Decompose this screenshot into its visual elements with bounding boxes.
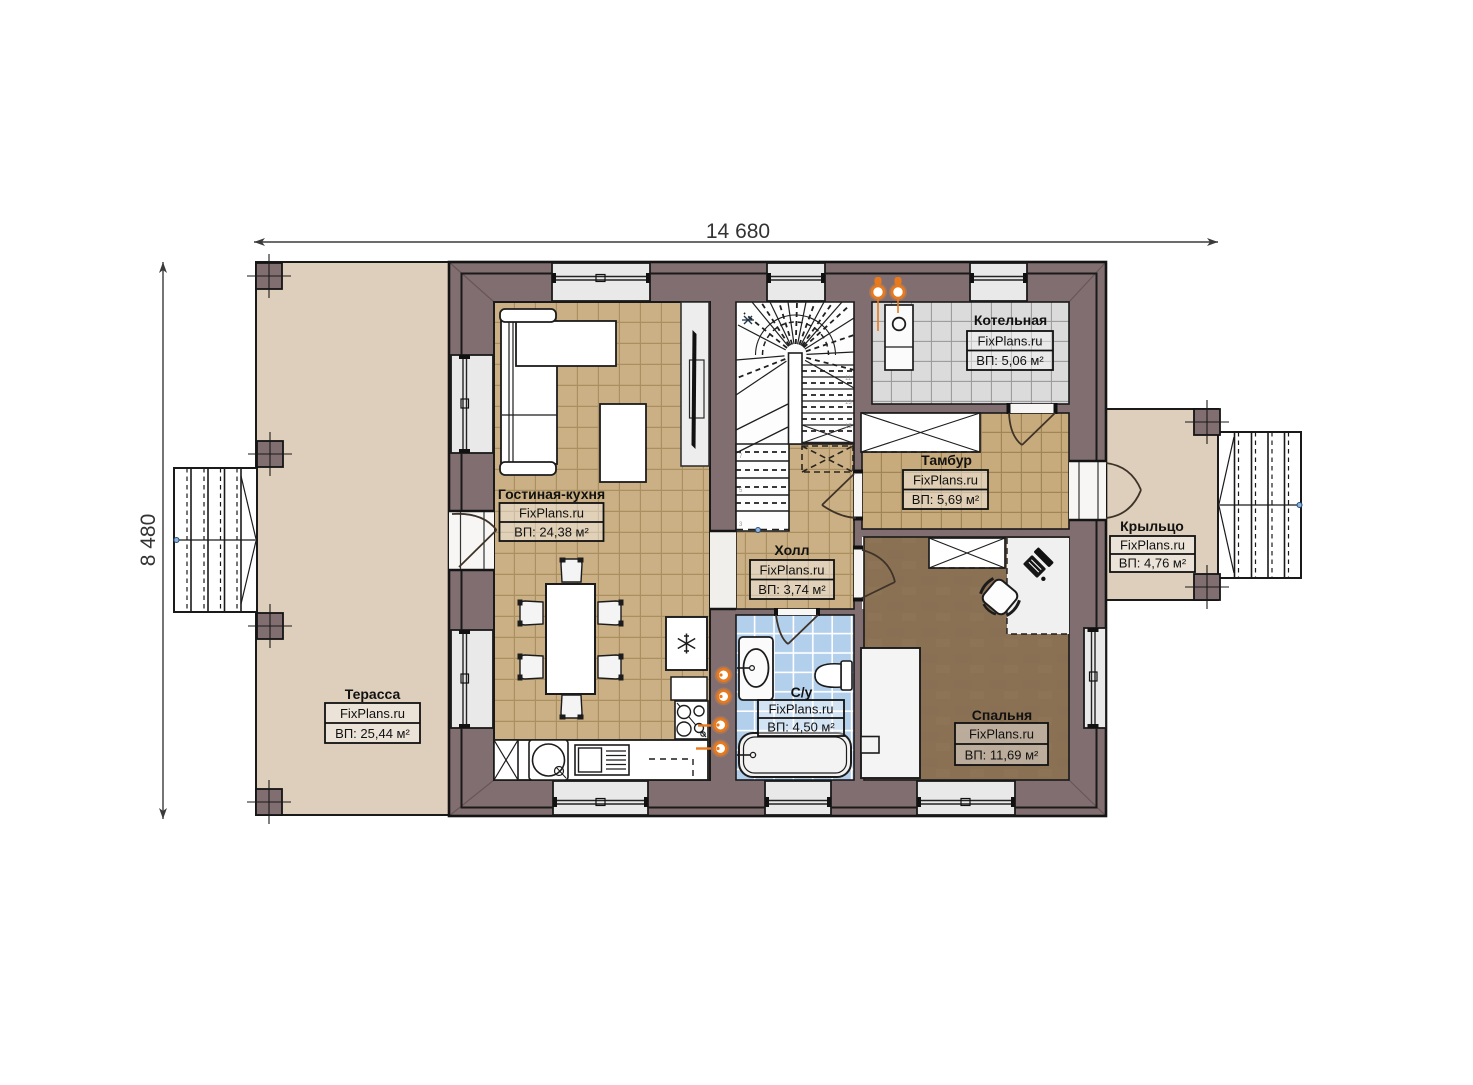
svg-text:FixPlans.ru: FixPlans.ru	[969, 727, 1034, 742]
svg-text:ВП: 5,06 м²: ВП: 5,06 м²	[976, 353, 1044, 368]
svg-text:FixPlans.ru: FixPlans.ru	[1120, 538, 1185, 553]
svg-text:Терасса: Терасса	[345, 686, 401, 702]
svg-text:Холл: Холл	[774, 542, 809, 558]
svg-text:С/у: С/у	[791, 684, 813, 700]
svg-text:Котельная: Котельная	[974, 312, 1047, 328]
svg-text:FixPlans.ru: FixPlans.ru	[913, 473, 978, 488]
svg-text:15: 15	[845, 424, 852, 430]
svg-text:FixPlans.ru: FixPlans.ru	[340, 706, 405, 721]
svg-text:ВП: 24,38 м²: ВП: 24,38 м²	[514, 525, 589, 540]
svg-text:ВП: 4,76 м²: ВП: 4,76 м²	[1119, 556, 1187, 571]
svg-text:11: 11	[845, 376, 852, 382]
svg-text:ВП: 25,44 м²: ВП: 25,44 м²	[335, 726, 410, 741]
svg-text:ВП: 11,69 м²: ВП: 11,69 м²	[965, 748, 1039, 763]
svg-text:14 680: 14 680	[706, 220, 770, 243]
svg-text:FixPlans.ru: FixPlans.ru	[977, 334, 1042, 349]
svg-text:FixPlans.ru: FixPlans.ru	[519, 506, 584, 521]
svg-text:13: 13	[845, 400, 852, 406]
svg-text:Спальня: Спальня	[972, 707, 1032, 723]
svg-text:Гостиная-кухня: Гостиная-кухня	[498, 486, 605, 502]
svg-text:ВП: 5,69 м²: ВП: 5,69 м²	[912, 492, 980, 507]
svg-text:ВП: 3,74 м²: ВП: 3,74 м²	[758, 582, 826, 597]
svg-text:Крыльцо: Крыльцо	[1120, 518, 1184, 534]
svg-text:ВП: 4,50 м²: ВП: 4,50 м²	[767, 720, 835, 735]
svg-text:8 480: 8 480	[137, 514, 160, 567]
svg-text:FixPlans.ru: FixPlans.ru	[768, 702, 833, 717]
svg-text:FixPlans.ru: FixPlans.ru	[759, 563, 824, 578]
svg-text:Тамбур: Тамбур	[921, 452, 972, 468]
